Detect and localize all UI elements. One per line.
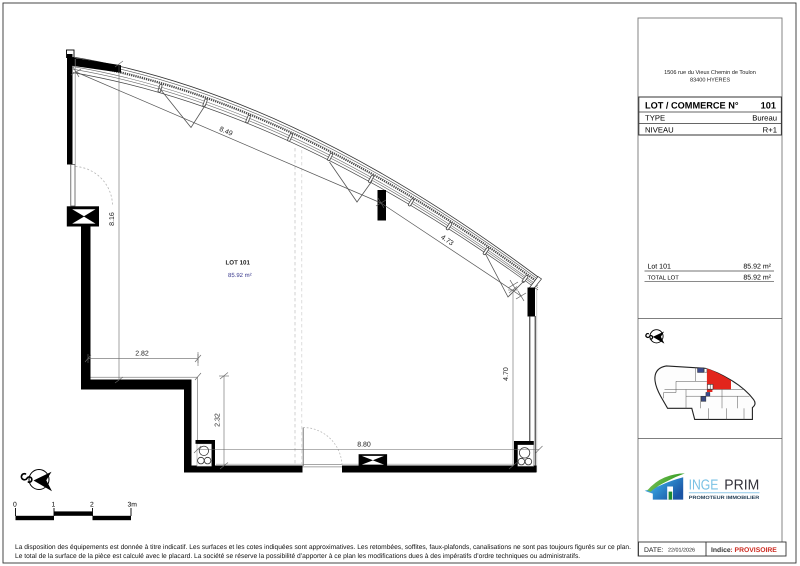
svg-text:INGE: INGE bbox=[689, 477, 719, 493]
svg-text:0: 0 bbox=[13, 502, 17, 509]
svg-text:2.32: 2.32 bbox=[215, 413, 222, 427]
svg-text:LOT 101: LOT 101 bbox=[226, 260, 251, 267]
svg-text:DATE:: DATE: bbox=[644, 547, 664, 554]
svg-text:TOTAL LOT: TOTAL LOT bbox=[648, 274, 680, 281]
svg-text:1: 1 bbox=[52, 502, 56, 509]
svg-text:PRIM: PRIM bbox=[724, 477, 759, 493]
svg-text:Lot 101: Lot 101 bbox=[648, 264, 671, 271]
svg-text:4.70: 4.70 bbox=[503, 367, 510, 381]
svg-text:22/01/2026: 22/01/2026 bbox=[668, 548, 695, 554]
svg-text:Le total de la surface de la p: Le total de la surface de la pièce est c… bbox=[15, 553, 580, 560]
svg-text:R+1: R+1 bbox=[763, 125, 777, 134]
svg-text:85.92 m²: 85.92 m² bbox=[743, 274, 771, 281]
svg-text:TYPE: TYPE bbox=[645, 114, 665, 123]
svg-text:2: 2 bbox=[90, 502, 94, 509]
svg-text:83400 HYERES: 83400 HYERES bbox=[690, 78, 730, 84]
svg-text:8.16: 8.16 bbox=[109, 212, 116, 226]
svg-text:NIVEAU: NIVEAU bbox=[645, 125, 674, 134]
svg-text:: PROVISOIRE: : PROVISOIRE bbox=[729, 547, 778, 554]
svg-text:3m: 3m bbox=[128, 502, 138, 509]
svg-text:101: 101 bbox=[761, 101, 776, 111]
svg-text:85.92 m²: 85.92 m² bbox=[228, 272, 252, 279]
svg-text:2.82: 2.82 bbox=[135, 351, 149, 358]
svg-text:Bureau: Bureau bbox=[752, 114, 777, 123]
svg-text:La disposition des équipements: La disposition des équipements est donné… bbox=[15, 544, 631, 551]
svg-text:1506 rue du Vieux Chemin de To: 1506 rue du Vieux Chemin de Toulon bbox=[664, 69, 756, 76]
svg-text:LOT / COMMERCE N°: LOT / COMMERCE N° bbox=[645, 101, 739, 111]
svg-text:85.92 m²: 85.92 m² bbox=[743, 264, 771, 271]
svg-text:PROMOTEUR IMMOBILIER: PROMOTEUR IMMOBILIER bbox=[689, 495, 760, 500]
svg-text:8.80: 8.80 bbox=[357, 442, 371, 449]
